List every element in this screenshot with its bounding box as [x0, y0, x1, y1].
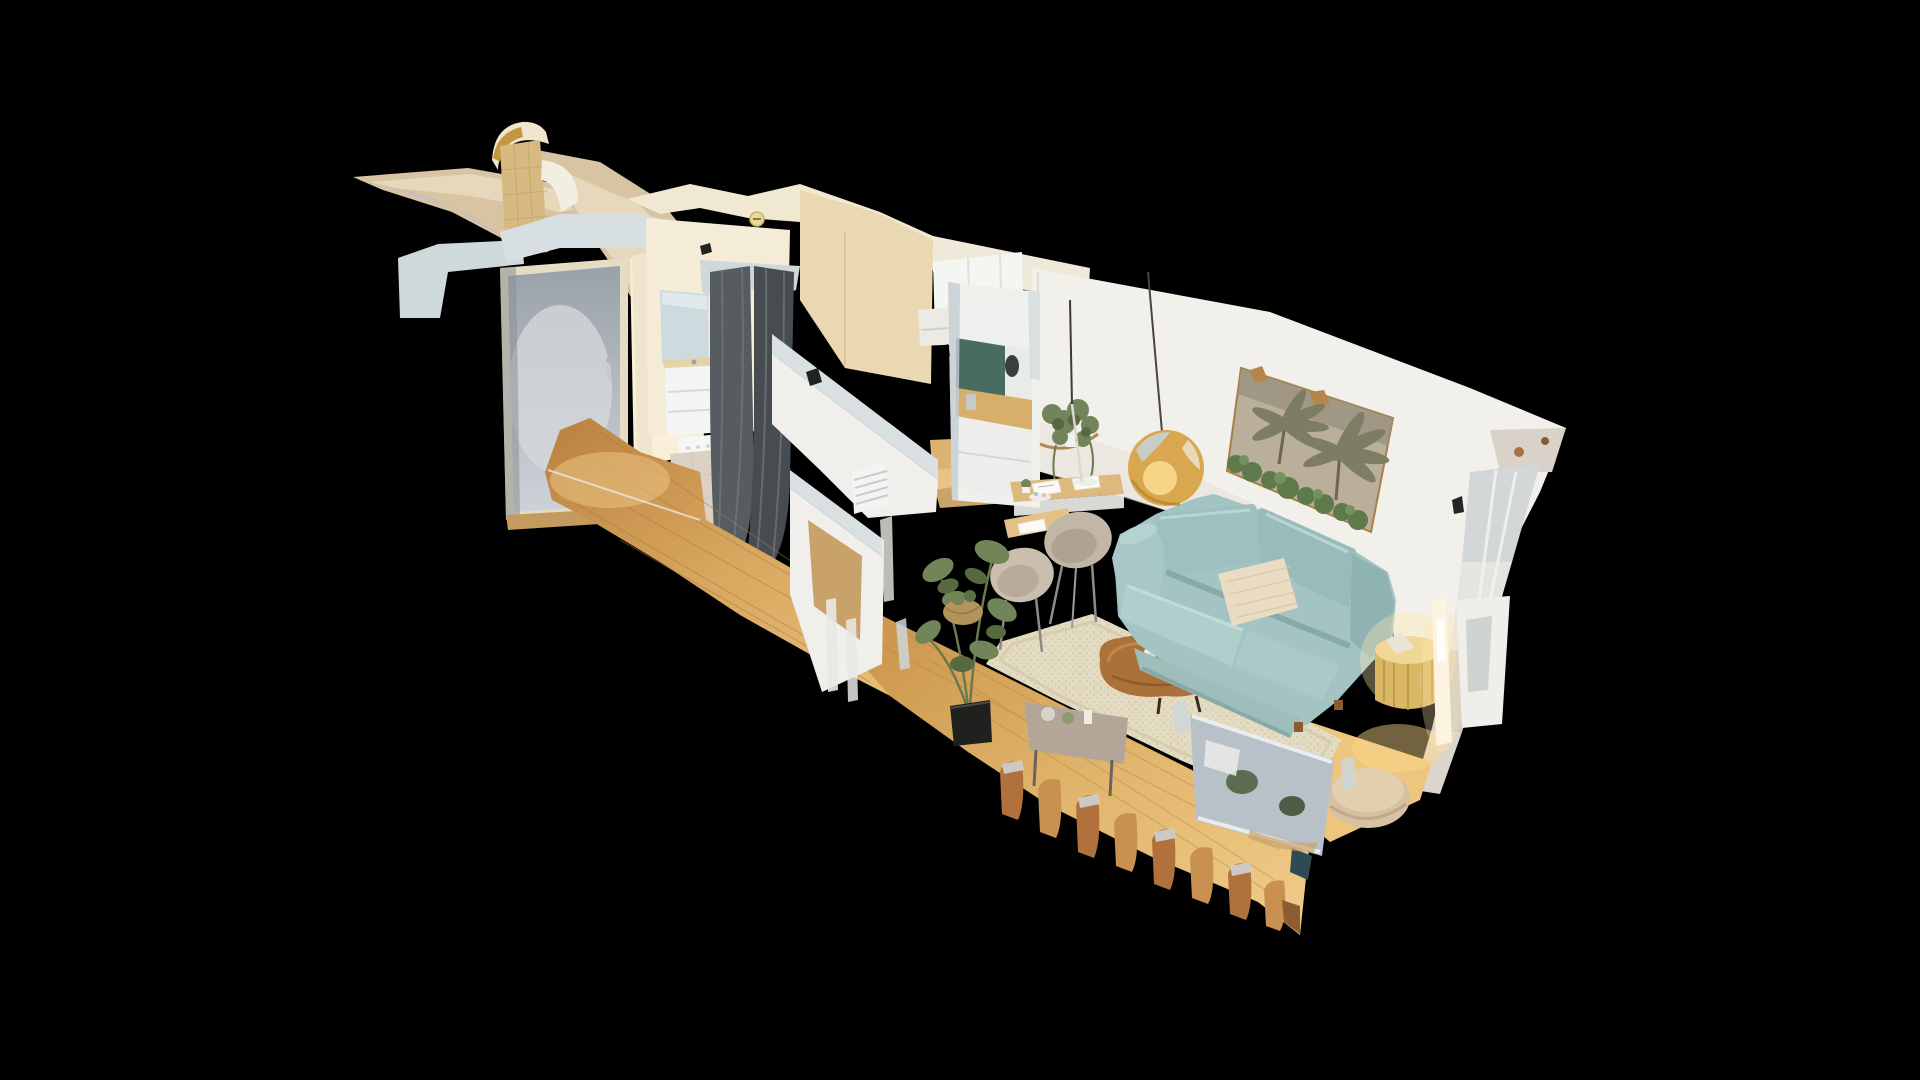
kitchen-pass-through-mirror [948, 282, 1040, 508]
door-handle [607, 364, 611, 380]
round-pouf [1326, 768, 1410, 828]
app-window [0, 0, 1920, 1080]
woven-basket [943, 599, 983, 625]
black-backdrop [0, 0, 1920, 1080]
white-column-fragment [1456, 596, 1510, 728]
cake-stand [1029, 493, 1051, 501]
dollhouse-3d-viewport[interactable] [0, 0, 1920, 1080]
desk-lamp-base [1074, 478, 1098, 486]
